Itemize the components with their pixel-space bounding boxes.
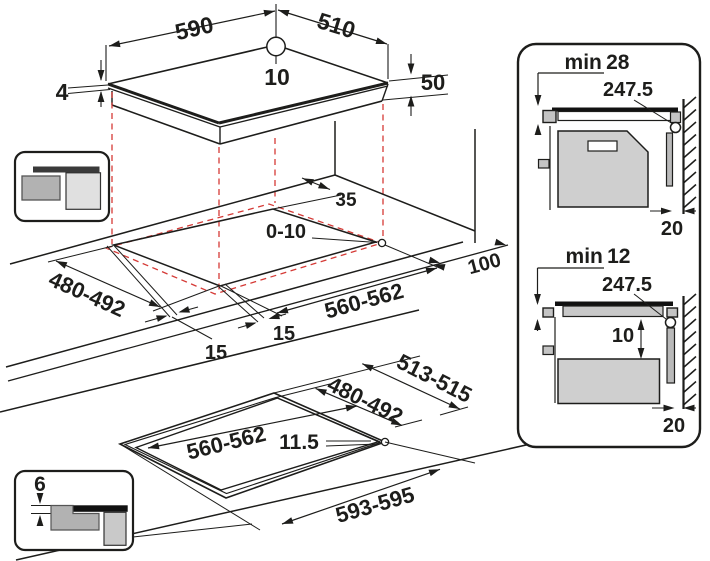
svg-text:20: 20 [663, 415, 685, 437]
svg-text:247.5: 247.5 [603, 79, 653, 101]
svg-text:min 28: min 28 [565, 51, 630, 74]
svg-text:11.5: 11.5 [279, 431, 319, 454]
svg-text:0-10: 0-10 [266, 221, 306, 243]
svg-text:min 12: min 12 [566, 245, 631, 268]
svg-text:247.5: 247.5 [602, 274, 652, 296]
svg-text:50: 50 [421, 70, 445, 95]
svg-text:4: 4 [56, 79, 69, 105]
svg-text:20: 20 [661, 218, 683, 240]
svg-text:10: 10 [612, 325, 634, 347]
svg-text:35: 35 [335, 190, 357, 211]
svg-text:10: 10 [264, 64, 290, 90]
svg-text:6: 6 [34, 473, 46, 496]
